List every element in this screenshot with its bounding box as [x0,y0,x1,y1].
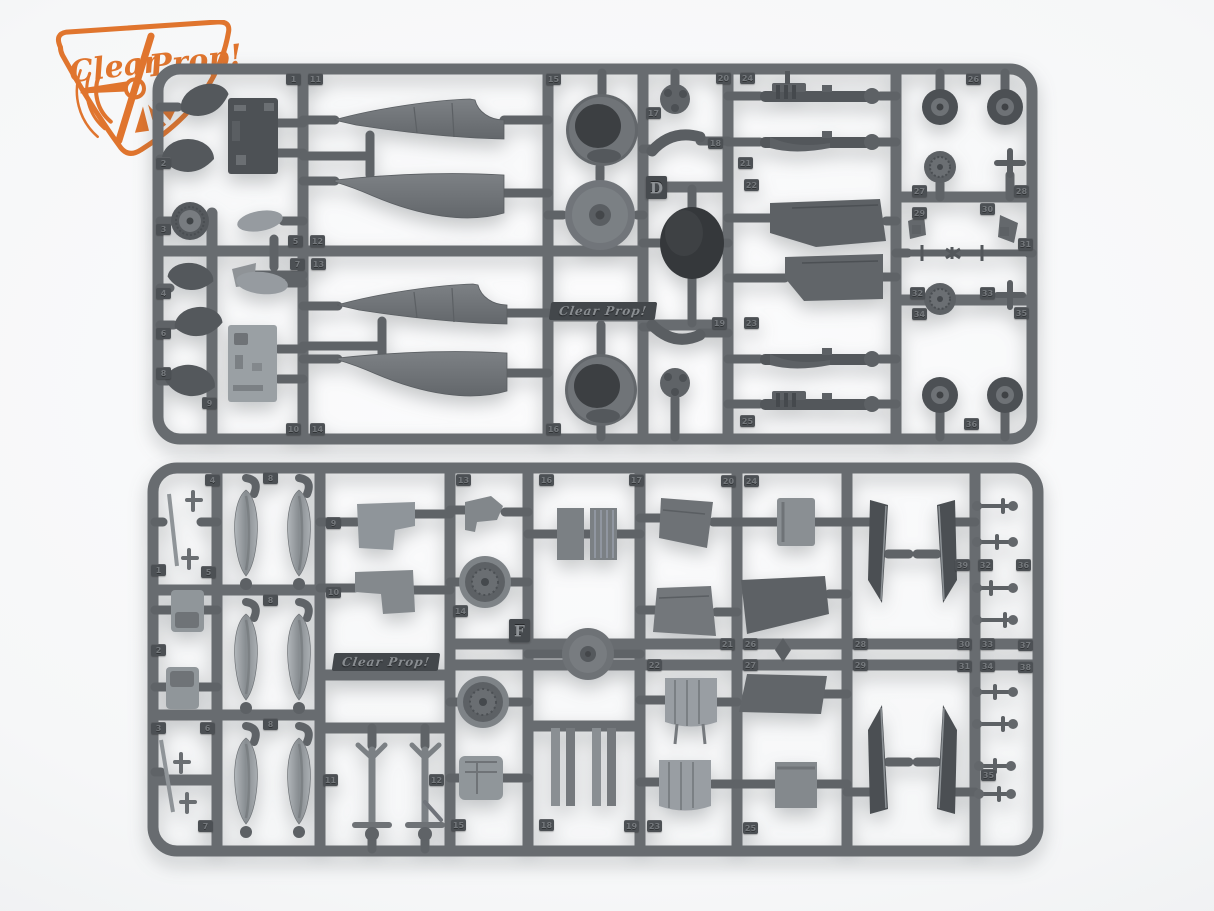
part-number-tag: 29 [912,207,927,219]
sprue-letter-plaque: D [646,176,667,199]
part-number-tag: 4 [156,287,171,299]
part-number-tag: 32 [910,287,925,299]
part-number-tag: 11 [308,73,323,85]
part-number-tag: 35 [1014,307,1029,319]
part-number-tag: 18 [539,819,554,831]
part-number-tag: 3 [151,722,166,734]
wheel-part [171,202,209,240]
cowl-ring-part [565,354,637,426]
part-number-tag: 6 [200,722,215,734]
part-number-tag: 36 [1016,559,1031,571]
part-number-tag: 3 [156,223,171,235]
prop-hub-part [660,84,690,114]
part-number-tag: 16 [539,474,554,486]
part-number-tag: 8 [156,367,171,379]
sprue-brand-plaque: Clear Prop! [549,302,658,320]
propeller-blade-parts [235,478,311,838]
strip-parts [551,728,616,806]
part-number-tag: 21 [720,638,735,650]
landing-gear-parts [352,745,445,841]
product-photo: Clear Prop! [0,0,1214,911]
part-number-tag: 5 [201,566,216,578]
part-number-tag: 13 [311,258,326,270]
part-number-tag: 8 [263,594,278,606]
part-number-tag: 22 [647,659,662,671]
part-number-tag: 5 [288,235,303,247]
console-panel-part [355,570,415,614]
prop-backplate-part [562,628,614,680]
sprue-letter-plaque: F [509,619,530,642]
part-number-tag: 27 [743,659,758,671]
part-number-tag: 35 [981,769,996,781]
part-number-tag: 28 [1014,185,1029,197]
prop-hub-part [660,368,690,398]
part-number-tag: 19 [712,317,727,329]
part-number-tag: 4 [205,474,220,486]
part-number-tag: 37 [1018,639,1033,651]
sprue-d-art [152,63,1038,445]
part-number-tag: 10 [326,586,341,598]
part-number-tag: 9 [202,397,217,409]
part-number-tag: 14 [453,605,468,617]
part-number-tag: 11 [323,774,338,786]
part-number-tag: 38 [1018,661,1033,673]
canister-parts [659,678,717,811]
part-number-tag: 20 [721,475,736,487]
part-number-tag: 7 [290,258,305,270]
sprue-f: F Clear Prop! 48131617202415829103687111… [147,462,1044,857]
part-number-tag: 32 [978,559,993,571]
cowl-ring-part [566,94,638,166]
part-number-tag: 9 [326,517,341,529]
part-number-tag: 8 [263,472,278,484]
part-number-tag: 33 [980,638,995,650]
console-panel-part [357,502,415,550]
part-number-tag: 6 [156,327,171,339]
part-number-tag: 21 [738,157,753,169]
part-number-tag: 18 [708,137,723,149]
part-number-tag: 23 [744,317,759,329]
part-number-tag: 30 [957,638,972,650]
part-number-tag: 7 [198,820,213,832]
part-number-tag: 27 [912,185,927,197]
part-number-tag: 12 [310,235,325,247]
part-number-tag: 8 [263,718,278,730]
part-number-tag: 23 [647,820,662,832]
part-number-tag: 10 [286,423,301,435]
part-number-tag: 22 [744,179,759,191]
part-number-tag: 1 [151,564,166,576]
part-number-tag: 17 [646,107,661,119]
part-number-tag: 2 [151,644,166,656]
part-number-tag: 29 [853,659,868,671]
flap-panel-part [741,576,829,634]
part-number-tag: 30 [980,203,995,215]
fairing-blade-parts [868,500,957,814]
part-number-tag: 1 [286,73,301,85]
part-number-tag: 17 [629,474,644,486]
hatch-part [459,756,503,800]
part-number-tag: 12 [429,774,444,786]
part-number-tag: 28 [853,638,868,650]
sprue-brand-plaque: Clear Prop! [332,653,441,671]
seat-parts [166,590,204,709]
part-number-tag: 33 [980,287,995,299]
logo-hub-center [132,85,138,91]
antenna-parts [979,500,1009,800]
part-number-tag: 24 [740,72,755,84]
part-number-tag: 2 [156,157,171,169]
hub-disc-parts [924,151,956,315]
part-number-tag: 25 [743,822,758,834]
part-number-tag: 20 [716,72,731,84]
part-number-tag: 19 [624,820,639,832]
part-number-tag: 31 [1018,238,1033,250]
part-number-tag: 13 [456,474,471,486]
part-number-tag: 26 [966,73,981,85]
part-number-tag: 34 [912,308,927,320]
part-number-tag: 24 [744,475,759,487]
part-number-tag: 39 [955,559,970,571]
sprue-f-art [147,462,1044,857]
part-number-tag: 14 [310,423,325,435]
flap-panel-part [739,674,827,714]
part-number-tag: 15 [546,73,561,85]
sprue-d: D Clear Prop! 11115202426234689571213101… [152,63,1038,445]
part-number-tag: 16 [546,423,561,435]
part-number-tag: 36 [964,418,979,430]
prop-backplate-part [565,180,635,250]
part-number-tag: 31 [957,660,972,672]
part-number-tag: 15 [451,819,466,831]
part-number-tag: 25 [740,415,755,427]
canopy-panel-dark [228,98,278,174]
canopy-panel-light [228,325,277,402]
part-number-tag: 26 [743,638,758,650]
part-number-tag: 34 [980,660,995,672]
